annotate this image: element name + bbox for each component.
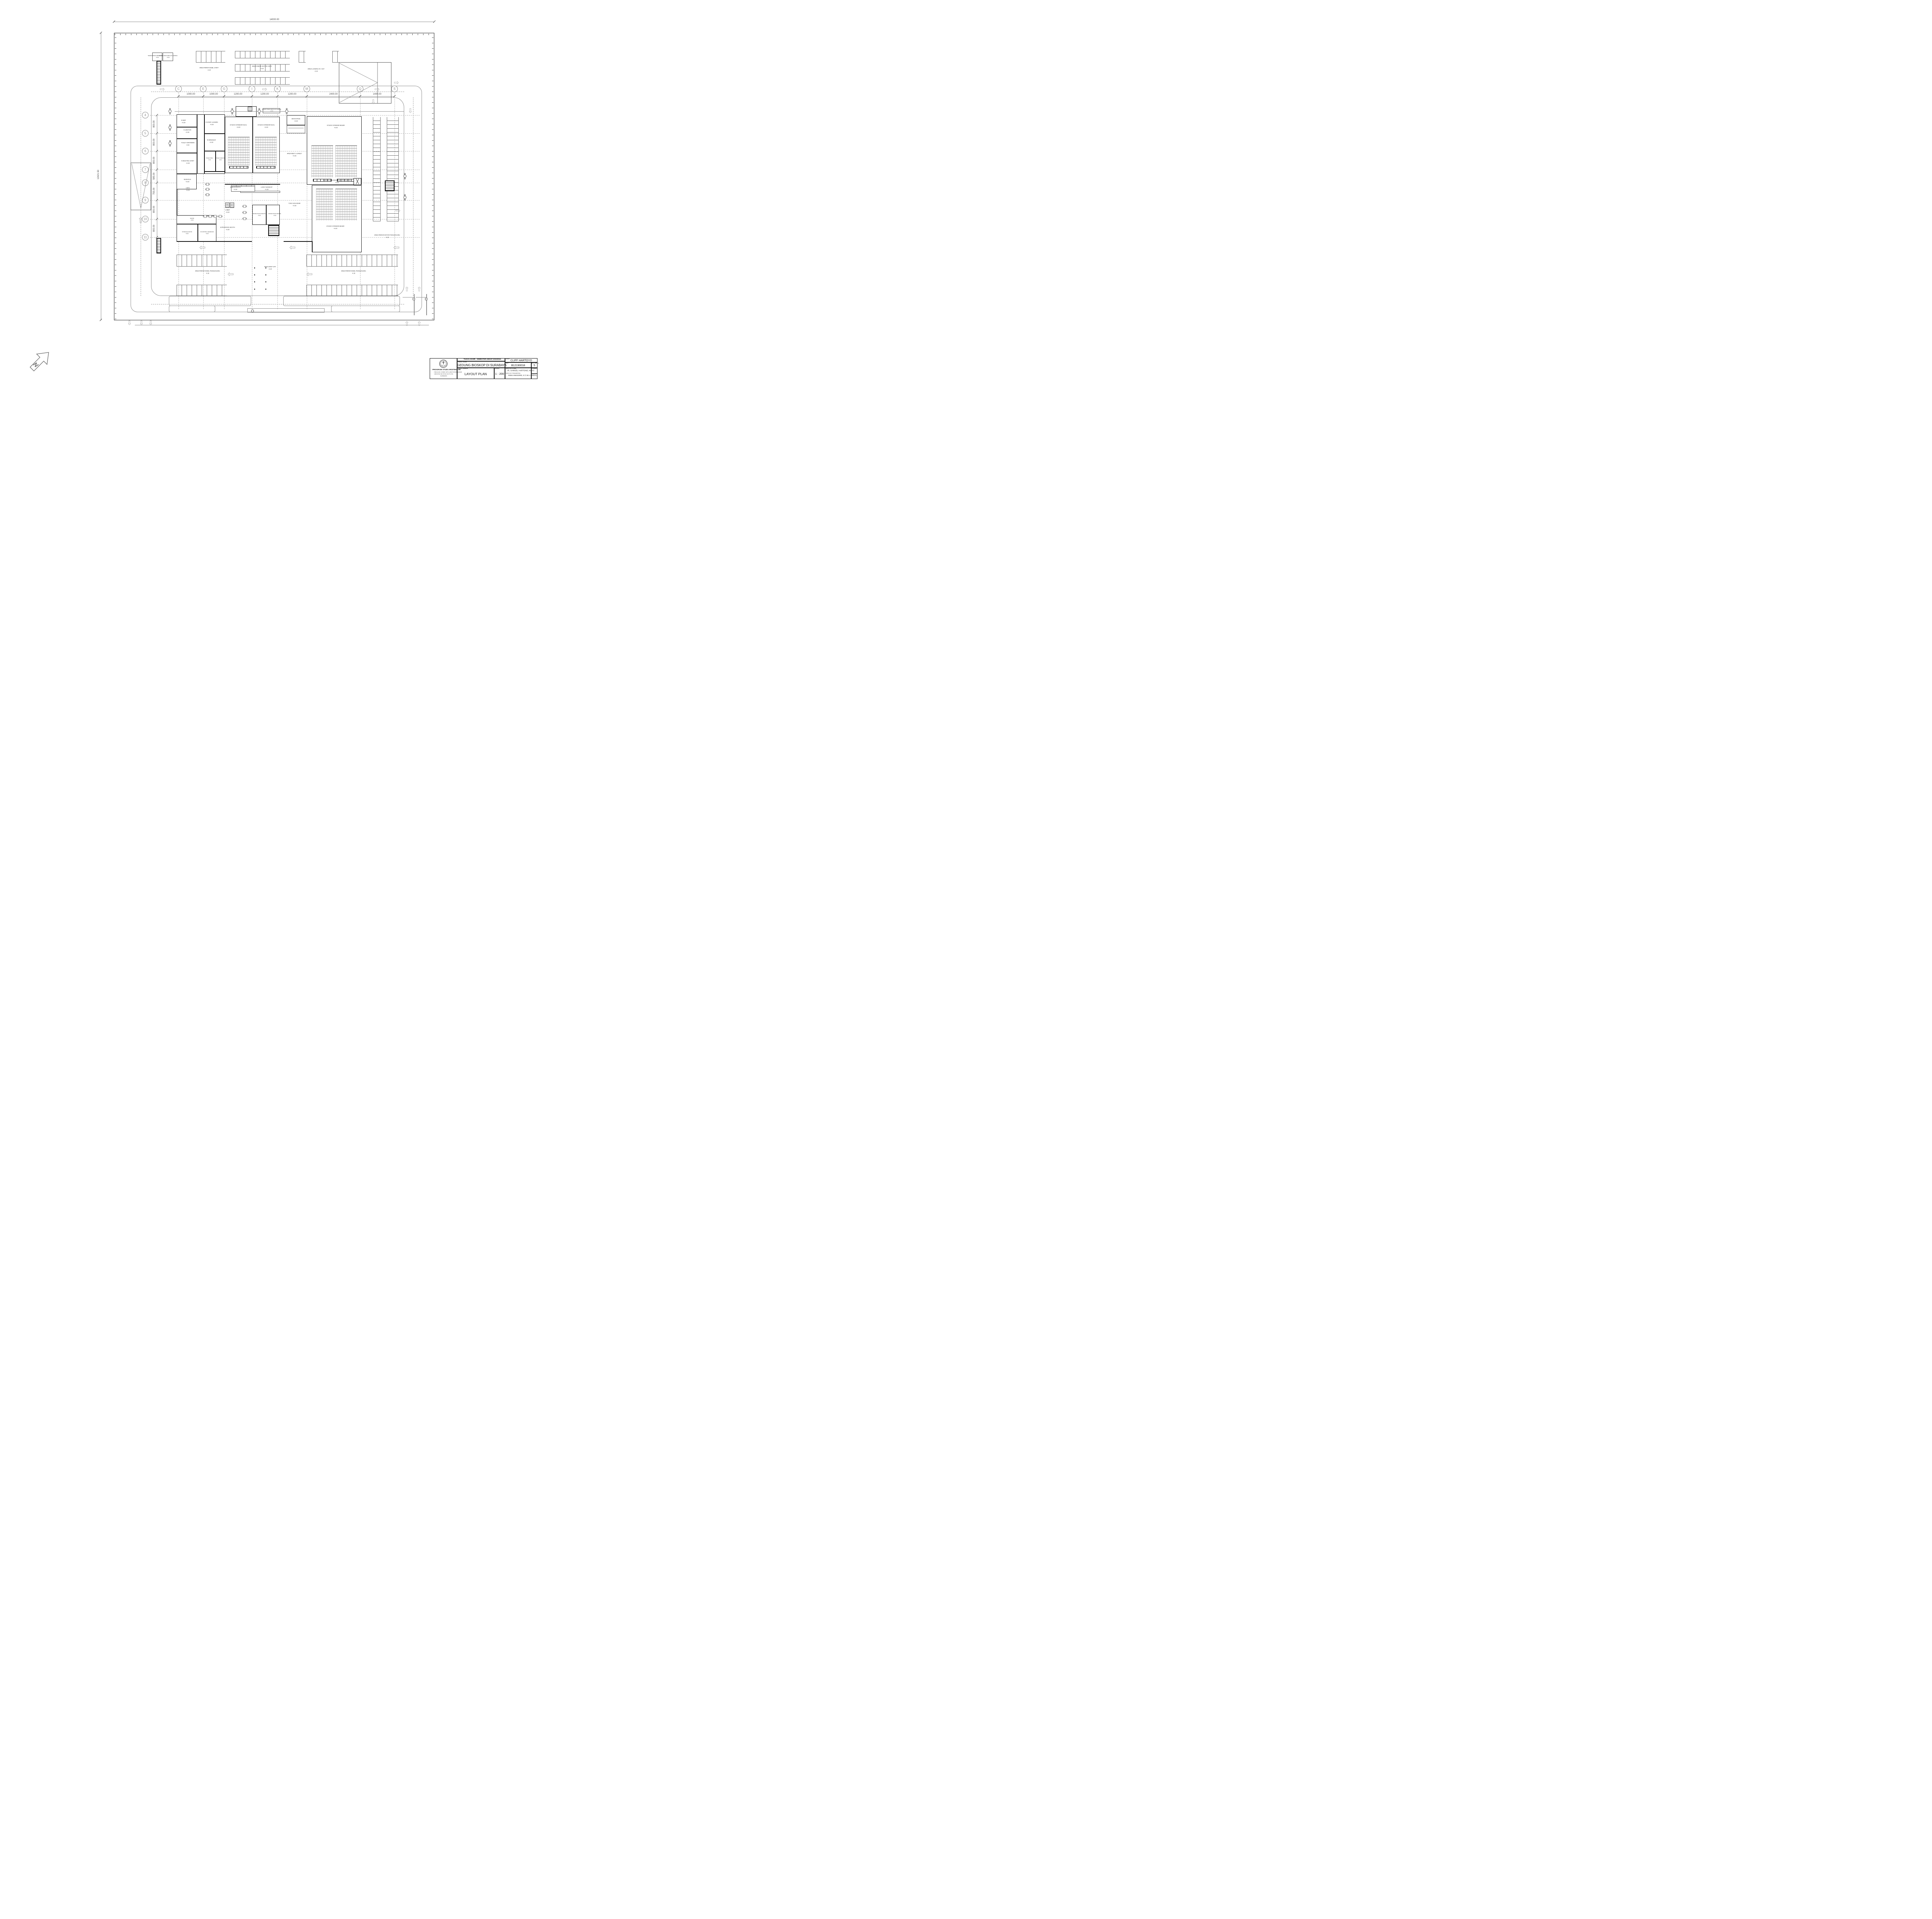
flow-arrow-right-icon: ⇨: [160, 86, 165, 92]
street-lamp-icon: [168, 142, 172, 145]
parking-hatch: [332, 51, 339, 63]
grid-bubble-col: G: [221, 86, 228, 92]
room-label-studio-besar-2: STUDIO STANDAR BESAR+0.00: [327, 226, 344, 230]
grid-bubble-col: S: [391, 86, 398, 92]
sofa-row: [256, 166, 276, 168]
grid-bubble-col: K: [274, 86, 281, 92]
room-label-photo-booth-1: MOVIE PHOTO BOOTH+0.00: [253, 213, 266, 217]
dim-line-left: [101, 33, 101, 320]
meet-greet-table: [243, 218, 246, 220]
path-dot: [254, 289, 255, 290]
median-island: [169, 306, 215, 312]
street-lamp-icon: [285, 110, 288, 113]
wall-segment: [177, 153, 197, 153]
cafe-table: [204, 215, 207, 218]
ramp-northeast: [339, 62, 391, 104]
median-island: [331, 306, 400, 312]
stair-central: [268, 225, 279, 236]
path-dot: [254, 281, 255, 282]
gate-box: [413, 298, 415, 300]
escalator-up-arrow-icon: ↑: [226, 203, 228, 207]
grid-bubble-row: 4: [142, 112, 149, 119]
wall-segment: [266, 205, 267, 225]
kelompok-value: 5: [531, 364, 537, 367]
room-label-storage-dapur: STORAGE DAPUR+0.00: [182, 231, 192, 235]
room-label-mushola: MUSHOLA+0.00: [184, 179, 191, 183]
room-label-manager: R.MANAGER+0.00: [207, 139, 216, 144]
area-label-parkir-mobil-kiri: AREA PARKIR MOBIL PENGUNJUNG-0.15: [195, 270, 220, 275]
mentor-utama-value: IR. SAMUEL HARTONO, M. SC: [507, 370, 529, 372]
cafe-table: [206, 194, 209, 196]
parking-hatch-visitor-car: [306, 255, 398, 267]
street-lamp-icon: [231, 110, 234, 113]
wall-segment: [204, 151, 225, 151]
university-logo-icon: [439, 359, 448, 368]
flow-arrow-right-icon: ⇨: [395, 207, 400, 214]
grid-col-dim: 1200.00: [234, 93, 242, 95]
room-label-gudang-proyektor: GUDANG & RUANG AKSES PROYEKTOR+0.00: [318, 180, 356, 184]
stair-southwest: [156, 238, 161, 253]
flow-arrow-left-icon: ⇦: [289, 243, 296, 251]
grid-bubble-col: E: [200, 86, 207, 92]
boundary-ticks-left: [115, 34, 116, 319]
room-label-loket: LOKET BIOSKOP+0.00: [261, 187, 272, 191]
flow-arrow-down-icon: ⇩: [148, 320, 153, 326]
room-label-kontrol: R.KONTROL KEAMANAN+0.00: [199, 231, 215, 235]
room-label-studio-kecil-2: STUDIO STANDAR KECIL+0.00: [258, 124, 275, 129]
flow-arrow-left-icon: ⇦: [393, 243, 400, 251]
wall-segment: [284, 241, 313, 242]
seating-studio-besar-1: [335, 145, 357, 177]
judul-gambar-value: LAYOUT PLAN: [457, 372, 494, 376]
ramp-west: [131, 163, 151, 210]
grid-col-dim: 1200.00: [260, 93, 269, 95]
area-label-loading: AREA LOADING IN / OUT-0.15: [308, 68, 324, 73]
grid-bubble-col: C: [175, 86, 182, 92]
grid-row-dim: 800.00: [153, 225, 155, 232]
ground-line: [135, 325, 429, 325]
road-centerline-right: [413, 97, 413, 296]
gate-post: [426, 294, 427, 315]
grid-bubble-col: M: [304, 86, 310, 92]
room-label-sampah-gedung: TEMPAT PENGUMPULAN SAMPAH+0.00: [262, 109, 281, 112]
institution-universitas: UNIVERSITAS KRISTEN PETRA: [434, 374, 453, 375]
parking-hatch-motor-staff: [235, 51, 290, 58]
grid-row-dim: 585.00: [153, 173, 155, 180]
jumlah-label: JUMLAH: [532, 374, 537, 375]
street-lamp-icon: [403, 175, 406, 178]
room-label-toilet-wanita: TOILET WANITA-0.02: [216, 158, 225, 161]
grid-col-dim: 1000.00: [209, 93, 218, 95]
bollard-circle: [251, 309, 254, 313]
street-lamp-icon: [168, 110, 172, 113]
room-label-lobby: LOBBY+0.00: [225, 209, 230, 214]
grid-row-dim: 800.00: [153, 206, 155, 213]
area-label-parkir-mobil-staff: AREA PARKIR MOBIL STAFF-0.15: [199, 67, 219, 71]
wall-segment: [225, 184, 280, 185]
grid-col-dim: 1000.00: [187, 93, 195, 95]
parking-hatch: [299, 51, 306, 63]
skala-label: SKALA: [495, 368, 499, 369]
wall-segment: [204, 171, 225, 172]
flow-arrow-right-icon: ⇨: [374, 86, 379, 92]
flow-arrow-up-icon: ⇧: [417, 286, 422, 292]
grid-bubble-row: 11: [142, 234, 149, 241]
grid-col-dim: 2400.00: [329, 93, 338, 95]
gate-arm: [403, 297, 413, 297]
grid-row-dim: 800.00: [153, 139, 155, 146]
flow-arrow-up-icon: ⇧: [417, 321, 422, 327]
path-dot: [265, 289, 266, 290]
escalator-down-arrow-icon: ↓: [231, 203, 233, 207]
parking-hatch-visitor-car: [177, 255, 227, 267]
meet-greet-table: [243, 205, 246, 208]
lembar-label: LEMBAR: [532, 368, 537, 369]
path-dot: [265, 281, 266, 282]
flow-arrow-down-icon: ⇩: [371, 99, 376, 105]
nama-value: CLIFF HARTOYO: [505, 359, 537, 362]
seating-studio-besar-2: [316, 189, 333, 221]
grid-row-dim: 755.00: [153, 188, 155, 195]
room-label-backstage: BACKSTAGE+0.00: [292, 118, 300, 122]
cafe-table: [219, 215, 222, 218]
dim-tick: [433, 20, 435, 23]
grid-col-dim: 1200.00: [288, 93, 296, 95]
path-dot: [254, 274, 255, 275]
boundary-ticks-top: [115, 34, 434, 35]
stair-east: [385, 180, 395, 191]
street-lamp-icon: [258, 110, 261, 113]
parking-hatch-motor-visitor: [373, 117, 381, 221]
wall-segment: [177, 127, 197, 127]
wall-segment: [204, 133, 225, 134]
room-label-dapur: DAPUR+0.00: [190, 218, 194, 221]
dim-tick: [100, 319, 102, 321]
stair-northwest: [156, 61, 161, 85]
stage: [287, 125, 305, 133]
median-island: [283, 296, 400, 306]
room-label-photo-booth-2: MOVIE PHOTO BOOTH+0.00: [269, 213, 281, 217]
flow-arrow-up-icon: ⇧: [138, 216, 144, 224]
cafe-table: [209, 215, 212, 218]
grid-row-dim: 800.00: [153, 121, 155, 127]
nrp-label: NRP: [506, 363, 509, 364]
flow-arrow-left-icon: ⇦: [199, 243, 206, 251]
wall-segment: [177, 241, 252, 242]
room-label-snack-booth: SNACK BOOTH+0.00: [230, 187, 240, 191]
seating-studio-besar-1: [311, 145, 333, 177]
flow-arrow-right-icon: ⇨: [394, 80, 399, 86]
area-label-parkir-motor-staff: AREA PARKIR MOTOR STAFF-0.15: [252, 66, 272, 70]
wall-segment: [215, 151, 216, 172]
mentor-utama-label: MENTOR UTAMA: [506, 368, 516, 369]
room-label-meeting-staff: R.MEETING STAFF+0.00: [181, 160, 194, 165]
room-label-experience-booth: EXPERIENCE BOOTH+0.00: [220, 227, 235, 231]
cafe-table: [214, 215, 217, 218]
room-label-studio-besar-1: STUDIO STANDAR BESAR+0.00: [327, 125, 345, 129]
seating-studio-kecil-1: [228, 137, 250, 165]
flow-arrow-up-icon: ⇧: [404, 321, 409, 327]
dim-line-top: [114, 22, 434, 22]
wall-segment: [312, 241, 313, 252]
area-label-parkir-mobil-kanan: AREA PARKIR MOBIL PENGUNJUNG-0.15: [341, 270, 366, 275]
gate-post: [414, 294, 415, 315]
path-dot: [254, 267, 255, 269]
room-label-staff-admin: R.STAFF & ADMIN+0.00: [206, 122, 218, 126]
wall-segment: [252, 117, 253, 173]
judul-gambar-label: JUDUL GAMBAR: [458, 368, 468, 369]
kelompok-label: KELOMPOK: [532, 363, 539, 364]
room-label-studio-kecil-1: STUDIO STANDAR KECIL+0.00: [230, 124, 247, 129]
mentor-pendamping-value: RONI ANGGORO, S.T, M.A. (ARCH): [509, 375, 528, 377]
seating-studio-besar-2: [335, 189, 357, 221]
mentor-pendamping-label: MENTOR PENDAMPING: [506, 373, 520, 374]
title-header: TUGAS AKHIR - SEMESTER GENAP 2023/2024: [464, 359, 499, 360]
parking-hatch-visitor-car: [306, 285, 398, 296]
grid-row-dim: 800.00: [153, 157, 155, 164]
room-label-toilet-karyawan: TOILET KARYAWAN-0.02: [181, 142, 195, 146]
flow-arrow-left-icon: ⇦: [306, 270, 313, 278]
parking-hatch-visitor-car: [177, 285, 227, 296]
institution-kota: SURABAYA: [434, 376, 453, 377]
boundary-ticks-right: [432, 34, 434, 319]
flow-arrow-down-icon: ⇩: [139, 320, 144, 326]
institution-fakultas: FAKULTAS TEKNIK SIPIL DAN PERENCANAAN: [434, 372, 453, 373]
parking-hatch-staff-car: [196, 51, 225, 63]
wall-segment: [204, 114, 205, 174]
cafe-table: [206, 188, 209, 191]
svg-text:N: N: [32, 361, 39, 369]
parking-hatch-motor-visitor: [387, 117, 399, 221]
room-label-sampah-2: TEMPAT PENGUMPULAN SAMPAH+0.00: [159, 55, 178, 59]
cafe-table: [206, 183, 209, 186]
flow-arrow-down-icon: ⇩: [127, 320, 132, 326]
dim-top-total: 14000.00: [269, 19, 279, 21]
sofa-row: [229, 166, 248, 168]
flow-arrow-right-icon: ⇨: [262, 86, 267, 92]
judul-tugas-value: GEDUNG BIOSKOP DI SURABAYA: [457, 364, 505, 367]
stair-vestibule: [248, 107, 252, 111]
room-label-mdp: R.MDP+0.00: [181, 120, 186, 124]
flow-arrow-up-icon: ⇧: [404, 286, 409, 292]
skala-value: 1 : 200: [494, 372, 505, 376]
area-label-parkir-motor-pengunjung: AREA PARKIR MOTOR PENGUNJUNG-0.15: [374, 235, 400, 239]
grid-bubble-col: I: [249, 86, 255, 92]
meet-greet-table: [243, 211, 246, 214]
gate-arm: [416, 297, 426, 297]
gate-box: [425, 298, 427, 300]
room-label-toko-souvenir: TOKO SOUVENIR+0.00: [289, 203, 301, 207]
dim-left-total: 12421.50: [97, 170, 100, 179]
wall-segment: [197, 114, 197, 174]
path-dot: [265, 267, 266, 269]
drawing-sheet: 14000.00 12421.50 C E G I K M Q S 1000.0…: [0, 0, 543, 384]
plaza-edge: [175, 111, 404, 112]
grid-bubble-row: 5: [142, 130, 149, 137]
seating-studio-kecil-2: [255, 137, 277, 165]
flow-arrow-left-icon: ⇦: [228, 270, 234, 278]
stage-edge: [288, 128, 304, 128]
grid-bubble-row: 6: [142, 148, 149, 155]
street-lamp-icon: [403, 196, 406, 199]
institution-prodi: PROGRAM STUDI ARSITEKTUR: [432, 369, 454, 371]
parking-hatch-motor-staff: [235, 77, 290, 85]
flow-arrow-down-icon: ⇩: [408, 108, 413, 114]
path-dot: [265, 274, 266, 275]
north-arrow: N: [26, 347, 54, 375]
nrp-value: B12190018: [505, 364, 531, 367]
elevator-x-icon: ╳: [356, 178, 359, 185]
room-label-janitor: R.JANITOR+0.00: [184, 129, 191, 134]
street-lamp-icon: [168, 126, 172, 129]
room-label-cafe: CAFE+0.00: [186, 187, 190, 192]
entry-canopy-strip: [247, 308, 325, 313]
median-island: [169, 296, 251, 306]
judul-tugas-label: JUDUL TUGAS: [458, 362, 467, 363]
room-label-toilet-pria: TOILET PRIA-0.02: [206, 158, 213, 161]
wall-segment: [177, 138, 197, 139]
room-label-meet-greet: AREA MEET & GREET+0.00: [287, 153, 302, 157]
